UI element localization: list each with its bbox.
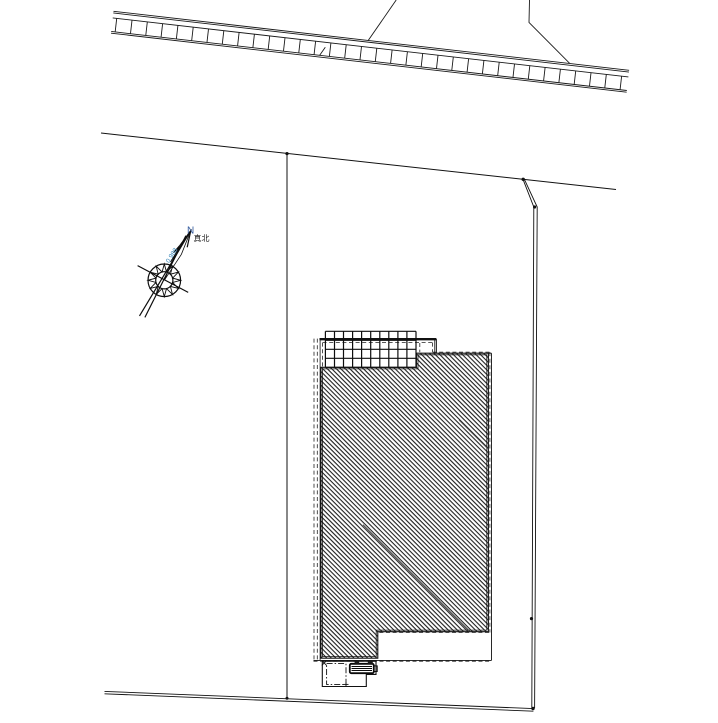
svg-text:真北: 真北 (194, 233, 210, 243)
